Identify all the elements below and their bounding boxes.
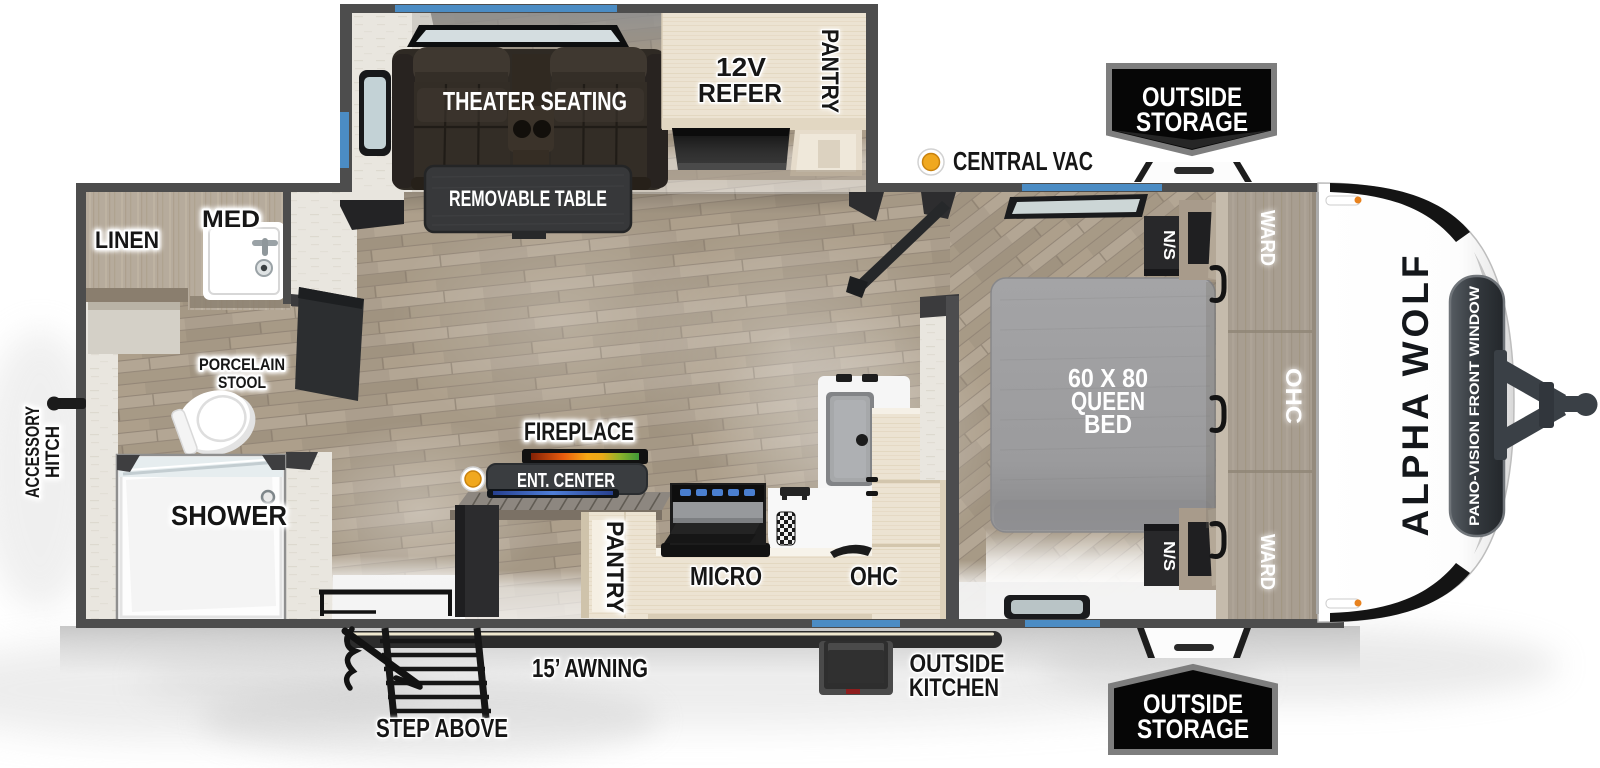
svg-text:ENT. CENTER: ENT. CENTER <box>517 470 615 492</box>
svg-text:N/S: N/S <box>1160 230 1177 260</box>
svg-text:OHC: OHC <box>850 561 898 591</box>
svg-text:STOOL: STOOL <box>218 373 266 392</box>
svg-text:PANTRY: PANTRY <box>601 521 628 613</box>
svg-text:CENTRAL VAC: CENTRAL VAC <box>953 146 1093 176</box>
svg-text:SHOWER: SHOWER <box>171 500 287 531</box>
svg-text:WARD: WARD <box>1256 210 1278 266</box>
svg-text:HITCH: HITCH <box>43 426 64 478</box>
svg-text:REFER: REFER <box>698 78 782 108</box>
svg-text:REMOVABLE TABLE: REMOVABLE TABLE <box>449 186 607 211</box>
svg-text:15’ AWNING: 15’ AWNING <box>532 653 648 683</box>
svg-text:KITCHEN: KITCHEN <box>909 674 999 702</box>
svg-text:N/S: N/S <box>1160 541 1177 571</box>
svg-text:ALPHA WOLF: ALPHA WOLF <box>1395 256 1436 537</box>
svg-text:ACCESSORY: ACCESSORY <box>23 406 44 498</box>
svg-text:STEP ABOVE: STEP ABOVE <box>376 713 508 743</box>
svg-text:MED: MED <box>202 206 260 233</box>
svg-text:THEATER SEATING: THEATER SEATING <box>443 86 627 116</box>
svg-text:OHC: OHC <box>1281 368 1306 424</box>
svg-text:STORAGE: STORAGE <box>1136 107 1248 137</box>
svg-text:LINEN: LINEN <box>95 227 159 254</box>
svg-text:BED: BED <box>1084 409 1132 439</box>
svg-text:FIREPLACE: FIREPLACE <box>524 418 634 446</box>
svg-text:WARD: WARD <box>1256 534 1278 590</box>
svg-text:STORAGE: STORAGE <box>1137 714 1249 744</box>
svg-text:MICRO: MICRO <box>690 561 762 591</box>
svg-text:PANO-VISION FRONT WINDOW: PANO-VISION FRONT WINDOW <box>1466 285 1482 526</box>
svg-text:PORCELAIN: PORCELAIN <box>199 355 285 374</box>
svg-text:PANTRY: PANTRY <box>816 29 843 113</box>
